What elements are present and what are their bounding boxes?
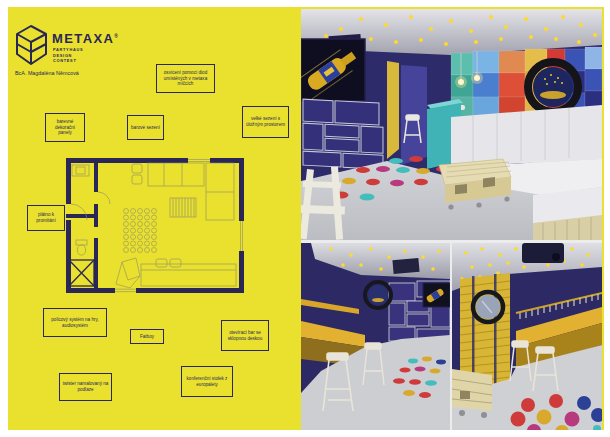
speaker-box [392,258,419,274]
porthole-mirror [473,292,503,322]
subtitle-line: PARTYHAUS [53,47,83,53]
plan-twister-dots [124,209,157,253]
render-main-room [301,9,602,240]
wall-panel-grid [303,99,383,169]
metaxa-cube-logo-icon [14,24,48,66]
brand-wordmark: METAXA® [52,31,118,46]
render-pallet-wall-bar [452,243,602,430]
label-large-seating: velké sezení s úložným prostorem [242,106,289,138]
brand-text: METAXA [52,31,114,46]
tv-screen [423,283,450,307]
yellow-column [387,61,399,159]
porthole-window [365,282,391,308]
render-bar-corner [301,243,450,430]
label-folding-bar: otevírací bar se sklopnou deskou [221,320,269,351]
label-decor-panels: barevné dekorační panely [45,113,85,142]
projector [522,243,564,263]
registered-mark: ® [114,33,118,39]
porthole-window [528,62,578,112]
poster-board: METAXA® PARTYHAUS DESIGN CONTEST BcA. Ma… [8,7,604,430]
label-pallet-table: konferenční stolek z europalety [181,366,233,397]
presentation-page: METAXA® PARTYHAUS DESIGN CONTEST BcA. Ma… [0,0,610,437]
author-name: BcA. Magdaléna Němcová [15,70,79,76]
render-gap-vertical [450,243,452,430]
label-shelf-system: policový systém na hry, audiosystém [43,308,107,337]
floor-plan [64,152,246,298]
label-projection-screen: plátno k promítání [27,205,65,231]
label-lighting: osvícení pomocí diod umístěných v metaxa… [156,64,215,93]
plan-shaft [69,260,94,286]
label-twister-floor: twister namalovaný na podlaze [59,373,112,401]
tv-screen [301,39,365,101]
label-bar-seating: barové sezení [127,115,164,140]
plan-walls [66,158,244,293]
label-fatboy: Fatboy [130,329,164,344]
logo-subtitle: PARTYHAUS DESIGN CONTEST [53,47,83,64]
subtitle-line: CONTEST [53,58,83,64]
